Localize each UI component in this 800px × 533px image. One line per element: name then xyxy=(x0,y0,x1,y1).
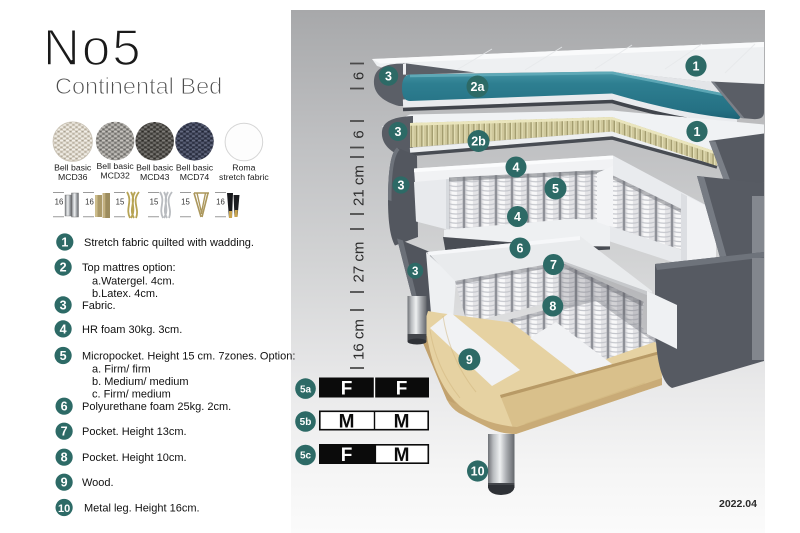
svg-text:9: 9 xyxy=(61,476,68,490)
svg-text:a.Watergel. 4cm.: a.Watergel. 4cm. xyxy=(92,276,175,288)
svg-text:8: 8 xyxy=(549,300,556,314)
svg-text:8: 8 xyxy=(61,451,68,465)
svg-text:Stretch fabric quilted with wa: Stretch fabric quilted with wadding. xyxy=(84,237,254,249)
svg-text:MCD74: MCD74 xyxy=(180,172,210,182)
svg-text:3: 3 xyxy=(60,298,67,312)
svg-text:a. Firm/ firm: a. Firm/ firm xyxy=(92,364,151,376)
svg-text:c. Firm/ medium: c. Firm/ medium xyxy=(92,388,171,400)
svg-text:Pocket. Height 13cm.: Pocket. Height 13cm. xyxy=(82,426,187,438)
svg-text:Pocket. Height 10cm.: Pocket. Height 10cm. xyxy=(82,452,187,464)
svg-text:Wood.: Wood. xyxy=(82,477,114,489)
svg-text:b. Medium/ medium: b. Medium/ medium xyxy=(92,376,189,388)
svg-text:MCD32: MCD32 xyxy=(100,171,130,181)
svg-text:1: 1 xyxy=(693,60,700,74)
svg-text:5b: 5b xyxy=(300,417,312,428)
svg-text:2: 2 xyxy=(60,261,67,275)
svg-text:HR foam 30kg. 3cm.: HR foam 30kg. 3cm. xyxy=(82,324,182,336)
svg-text:Bell basic: Bell basic xyxy=(54,163,92,173)
svg-text:5c: 5c xyxy=(300,451,312,462)
svg-text:2022.04: 2022.04 xyxy=(719,498,757,510)
svg-text:F: F xyxy=(396,379,408,400)
svg-text:4: 4 xyxy=(513,161,520,175)
svg-text:16: 16 xyxy=(55,198,64,207)
svg-text:F: F xyxy=(341,379,353,400)
svg-text:Top mattres option:: Top mattres option: xyxy=(82,262,176,274)
svg-text:3: 3 xyxy=(412,266,418,278)
svg-text:15: 15 xyxy=(181,198,190,207)
svg-text:Bell basic: Bell basic xyxy=(176,163,214,173)
svg-text:16: 16 xyxy=(85,198,94,207)
svg-text:3: 3 xyxy=(385,70,392,84)
svg-text:b.Latex. 4cm.: b.Latex. 4cm. xyxy=(92,288,158,300)
svg-text:6: 6 xyxy=(517,242,524,256)
svg-text:10: 10 xyxy=(58,503,70,515)
svg-text:3: 3 xyxy=(395,125,402,139)
svg-text:16: 16 xyxy=(216,198,225,207)
svg-text:16 cm: 16 cm xyxy=(351,319,368,360)
svg-text:Bell basic: Bell basic xyxy=(136,163,174,173)
svg-text:Fabric.: Fabric. xyxy=(82,300,116,312)
svg-text:Roma: Roma xyxy=(232,163,255,173)
svg-text:2b: 2b xyxy=(471,135,486,149)
svg-text:5: 5 xyxy=(552,182,559,196)
svg-text:4: 4 xyxy=(60,322,67,336)
svg-text:7: 7 xyxy=(550,258,557,272)
svg-text:stretch fabric: stretch fabric xyxy=(219,172,269,182)
svg-text:Bell basic: Bell basic xyxy=(97,161,135,171)
svg-text:Continental Bed: Continental Bed xyxy=(55,73,222,99)
svg-text:MCD36: MCD36 xyxy=(58,172,88,182)
svg-text:5a: 5a xyxy=(300,384,312,395)
svg-text:M: M xyxy=(339,412,355,433)
svg-text:M: M xyxy=(394,412,410,433)
svg-text:7: 7 xyxy=(61,425,68,439)
svg-text:9: 9 xyxy=(466,353,473,367)
svg-text:F: F xyxy=(341,445,353,466)
svg-text:15: 15 xyxy=(116,198,125,207)
svg-text:3: 3 xyxy=(398,179,405,193)
svg-text:Metal leg. Height 16cm.: Metal leg. Height 16cm. xyxy=(84,503,200,515)
svg-text:4: 4 xyxy=(514,210,521,224)
svg-text:Polyurethane foam 25kg. 2cm.: Polyurethane foam 25kg. 2cm. xyxy=(82,401,231,413)
svg-text:5: 5 xyxy=(60,349,67,363)
svg-text:10: 10 xyxy=(471,465,485,479)
svg-text:No5: No5 xyxy=(43,19,143,76)
svg-text:21 cm: 21 cm xyxy=(351,165,368,206)
svg-text:6: 6 xyxy=(61,400,68,414)
svg-text:2a: 2a xyxy=(471,80,486,94)
svg-text:15: 15 xyxy=(150,198,159,207)
svg-text:6: 6 xyxy=(351,72,368,80)
svg-text:6: 6 xyxy=(351,130,368,138)
svg-text:1: 1 xyxy=(61,235,68,249)
svg-text:1: 1 xyxy=(694,125,701,139)
svg-text:MCD43: MCD43 xyxy=(140,172,170,182)
svg-text:27 cm: 27 cm xyxy=(351,242,368,283)
svg-text:Micropocket. Height 15 cm. 7zo: Micropocket. Height 15 cm. 7zones. Optio… xyxy=(82,351,295,363)
svg-text:M: M xyxy=(394,445,410,466)
